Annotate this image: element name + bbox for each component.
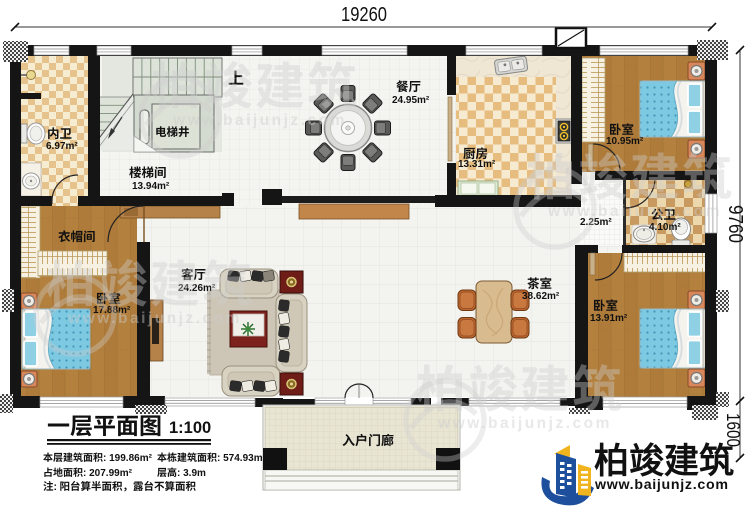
svg-text:38.62m²: 38.62m² [522, 291, 560, 302]
svg-text:19260: 19260 [341, 4, 387, 26]
svg-text:10.95m²: 10.95m² [606, 136, 644, 147]
svg-text:6.97m²: 6.97m² [46, 141, 78, 152]
svg-text:13.94m²: 13.94m² [132, 181, 170, 192]
svg-text:24.95m²: 24.95m² [392, 95, 430, 106]
svg-text:: 574.93m²: : 574.93m² [217, 453, 267, 464]
svg-text:www.baijunjz.com: www.baijunjz.com [594, 477, 729, 493]
svg-text::: : [54, 481, 58, 493]
svg-text:柏竣建筑: 柏竣建筑 [594, 441, 734, 481]
svg-text:1:100: 1:100 [169, 419, 211, 437]
svg-text:13.31m²: 13.31m² [458, 159, 496, 170]
svg-text:9760: 9760 [724, 205, 746, 243]
svg-text:: 3.9m: : 3.9m [177, 468, 206, 479]
svg-text:: 199.86m²: : 199.86m² [103, 453, 153, 464]
svg-text:4.10m²: 4.10m² [649, 222, 681, 233]
svg-text:: 207.99m²: : 207.99m² [83, 468, 133, 479]
svg-text:13.91m²: 13.91m² [590, 313, 628, 324]
